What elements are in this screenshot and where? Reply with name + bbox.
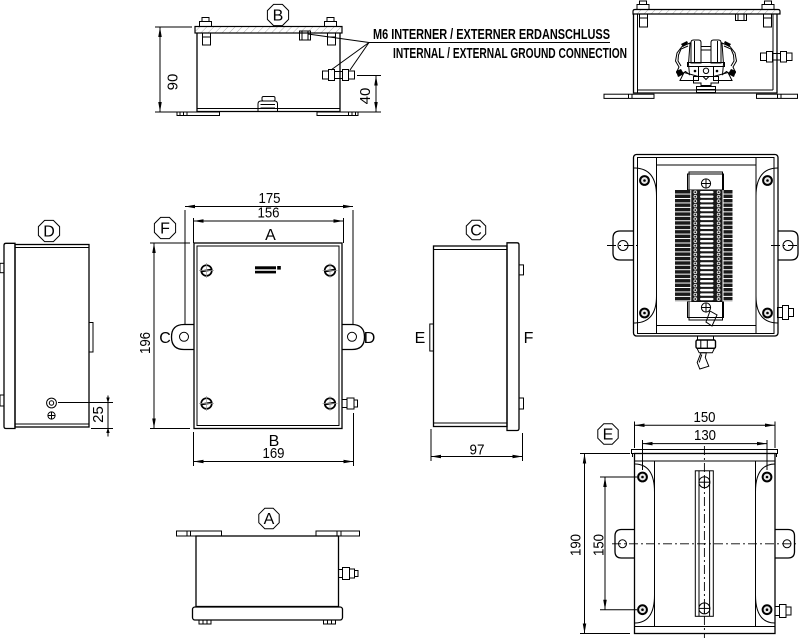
svg-text:F: F — [524, 330, 534, 347]
svg-text:D: D — [43, 224, 55, 241]
svg-text:97: 97 — [470, 442, 485, 459]
svg-text:F: F — [160, 221, 170, 238]
svg-text:25: 25 — [90, 406, 107, 423]
svg-text:M6 INTERNER / EXTERNER ERDANSC: M6 INTERNER / EXTERNER ERDANSCHLUSS — [373, 27, 610, 43]
svg-text:169: 169 — [263, 445, 285, 462]
svg-text:40: 40 — [357, 88, 374, 105]
svg-text:A: A — [265, 227, 276, 244]
svg-text:196: 196 — [137, 332, 154, 354]
svg-text:C: C — [159, 330, 171, 347]
svg-text:150: 150 — [591, 534, 608, 556]
svg-text:E: E — [415, 330, 426, 347]
svg-text:156: 156 — [258, 205, 280, 222]
svg-text:150: 150 — [694, 409, 716, 426]
svg-text:E: E — [603, 427, 614, 444]
svg-text:130: 130 — [694, 427, 716, 444]
svg-text:190: 190 — [568, 534, 585, 556]
svg-text:B: B — [273, 8, 284, 25]
svg-text:90: 90 — [165, 74, 182, 91]
svg-text:C: C — [470, 223, 482, 240]
svg-text:A: A — [264, 511, 275, 528]
svg-text:INTERNAL / EXTERNAL GROUND CON: INTERNAL / EXTERNAL GROUND CONNECTION — [393, 46, 627, 62]
svg-text:D: D — [364, 330, 376, 347]
